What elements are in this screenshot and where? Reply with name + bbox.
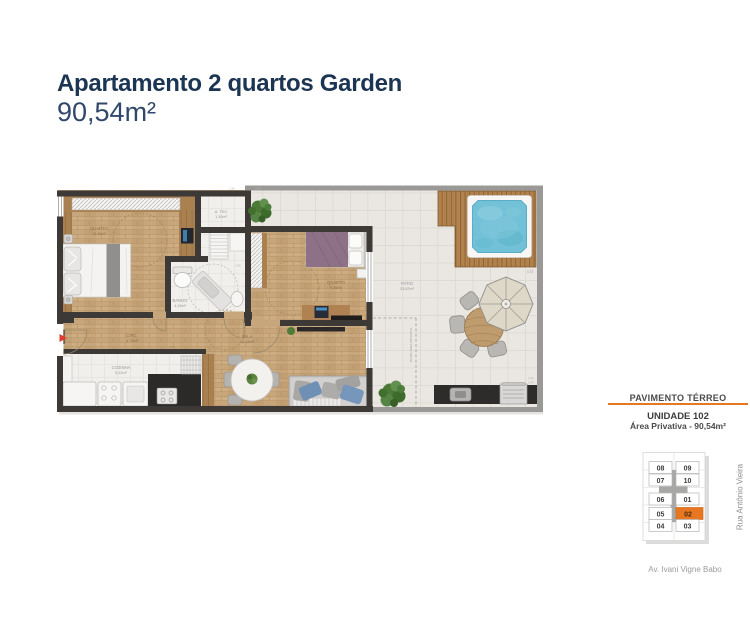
svg-text:03: 03 [684,524,692,531]
svg-text:33,52m²: 33,52m² [400,287,415,291]
svg-text:QUARTO: QUARTO [327,280,346,285]
svg-text:12,12m²: 12,12m² [240,340,255,344]
svg-text:0,45: 0,45 [528,381,534,385]
svg-text:4,18m²: 4,18m² [174,304,187,308]
svg-text:6,95: 6,95 [255,186,261,190]
svg-text:1,30m²: 1,30m² [215,215,228,219]
svg-text:1,35: 1,35 [229,186,235,190]
svg-text:05: 05 [657,512,665,519]
svg-text:10: 10 [684,478,692,485]
svg-text:2,85: 2,85 [235,264,241,268]
svg-text:0,60: 0,60 [528,376,534,380]
svg-text:12,45m²: 12,45m² [92,232,107,236]
svg-text:COZINHA: COZINHA [112,365,131,370]
svg-text:A. TEC: A. TEC [215,209,228,214]
svg-text:01: 01 [684,497,692,504]
svg-text:QUARTO: QUARTO [90,226,109,231]
svg-text:DIVISA ÁREA PRIVATIVA: DIVISA ÁREA PRIVATIVA [409,328,413,362]
svg-text:02: 02 [684,512,692,519]
svg-text:5,92m²: 5,92m² [115,371,128,375]
svg-text:9,36m²: 9,36m² [330,286,343,290]
svg-text:SALA: SALA [242,334,253,339]
svg-text:4,73: 4,73 [527,270,533,274]
svg-text:CIRC.: CIRC. [126,333,137,338]
svg-text:06: 06 [657,497,665,504]
svg-text:08: 08 [657,466,665,473]
svg-text:PATIO: PATIO [401,281,414,286]
svg-text:3,73m²: 3,73m² [126,339,139,343]
svg-text:2,75: 2,75 [169,345,175,349]
svg-text:07: 07 [657,478,665,485]
svg-text:09: 09 [684,466,692,473]
svg-text:04: 04 [657,524,665,531]
svg-text:BANHO: BANHO [173,298,189,303]
